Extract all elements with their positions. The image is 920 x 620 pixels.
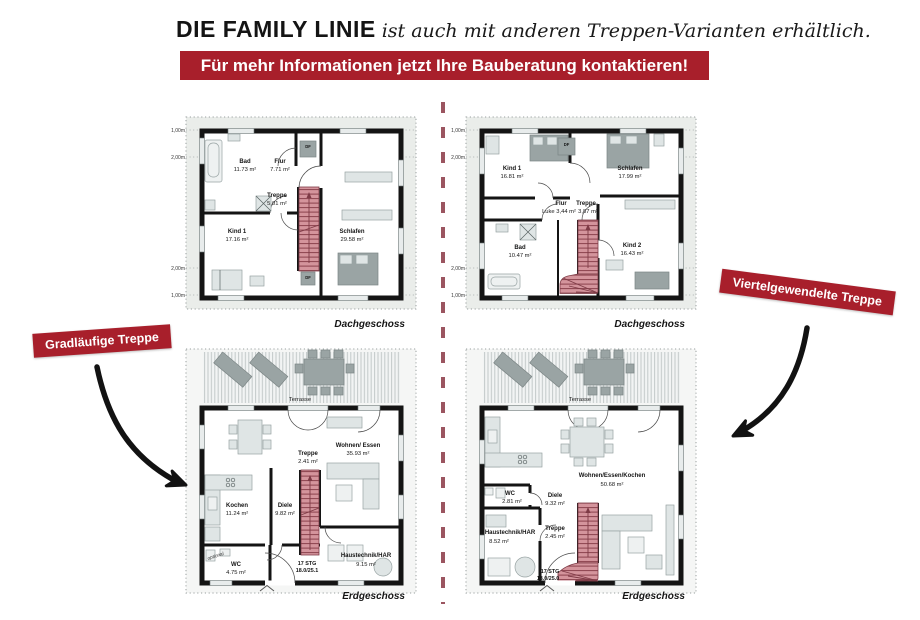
svg-text:10.47 m²: 10.47 m²: [509, 253, 532, 259]
svg-text:Bad: Bad: [514, 245, 526, 251]
roof-window-bottom: DF: [301, 272, 315, 285]
svg-text:WC: WC: [505, 491, 516, 497]
svg-text:16.81 m²: 16.81 m²: [501, 174, 524, 180]
callout-straight-stair: Gradläufige Treppe: [32, 324, 171, 358]
svg-text:Treppe: Treppe: [267, 193, 287, 199]
svg-text:DF: DF: [305, 275, 311, 280]
dim-label: 1,00m: [171, 293, 185, 299]
svg-text:Wohnen/Essen/Kochen: Wohnen/Essen/Kochen: [579, 473, 646, 479]
plan-caption: Dachgeschoss: [614, 319, 685, 330]
plan-caption: Erdgeschoss: [622, 591, 685, 602]
svg-text:17.99 m²: 17.99 m²: [619, 174, 642, 180]
flyer-canvas: DIE FAMILY LINIEist auch mit anderen Tre…: [0, 0, 920, 620]
bathtub: [205, 140, 222, 182]
svg-text:50.68 m²: 50.68 m²: [601, 482, 624, 488]
svg-text:WC: WC: [231, 562, 242, 568]
svg-text:11.73 m²: 11.73 m²: [234, 167, 257, 173]
dim-label: 1,00m: [451, 293, 465, 299]
dim-label: 1,00m: [451, 128, 465, 134]
svg-text:Haustechnik/HAR: Haustechnik/HAR: [485, 530, 536, 536]
header: DIE FAMILY LINIEist auch mit anderen Tre…: [176, 16, 736, 43]
svg-text:9.82 m²: 9.82 m²: [275, 511, 295, 517]
staircase-straight: [301, 470, 319, 555]
header-tagline: ist auch mit anderen Treppen-Varianten e…: [382, 20, 871, 42]
plan-dachgeschoss-winder: 1,00m 2,00m 2,00m 1,00m: [450, 108, 710, 338]
stair-dims: 18.0/25.1: [296, 568, 318, 574]
svg-text:Schlafen: Schlafen: [617, 166, 642, 172]
svg-text:Schlafen: Schlafen: [339, 229, 364, 235]
dim-label: 2,00m: [171, 266, 185, 272]
info-banner: Für mehr Informationen jetzt Ihre Bauber…: [180, 51, 709, 80]
svg-text:Kind 1: Kind 1: [503, 166, 522, 172]
brand-title: DIE FAMILY LINIE: [176, 16, 376, 42]
svg-text:Treppe: Treppe: [298, 451, 318, 457]
svg-text:2.41 m²: 2.41 m²: [298, 459, 318, 465]
svg-text:11.24 m²: 11.24 m²: [226, 511, 249, 517]
svg-text:29.58 m²: 29.58 m²: [341, 237, 364, 243]
svg-text:DF: DF: [305, 144, 311, 149]
svg-text:4.75 m²: 4.75 m²: [226, 570, 246, 576]
callout-winder-stair: Viertelgewendelte Treppe: [719, 269, 895, 316]
svg-text:DF: DF: [564, 142, 570, 147]
svg-text:Diele: Diele: [278, 503, 293, 509]
arrow-right: [733, 328, 807, 436]
svg-text:Kochen: Kochen: [226, 503, 248, 509]
svg-text:Flur: Flur: [555, 201, 567, 207]
terrace-label: Terrasse: [289, 397, 311, 403]
svg-text:35.93 m²: 35.93 m²: [347, 451, 370, 457]
svg-text:8.52 m²: 8.52 m²: [489, 539, 509, 545]
plan-erdgeschoss-straight: Terrasse: [170, 345, 430, 605]
svg-text:Bad: Bad: [239, 159, 251, 165]
plan-dachgeschoss-straight: 1,00m 2,00m 2,00m 1,00m: [170, 108, 430, 338]
svg-text:Haustechnik/HAR: Haustechnik/HAR: [341, 553, 392, 559]
svg-text:9.15 m²: 9.15 m²: [356, 562, 376, 568]
stair-steps: 17 STG: [298, 561, 317, 567]
svg-text:16.43 m²: 16.43 m²: [621, 251, 644, 257]
svg-text:Luke 3,44 m²: Luke 3,44 m²: [542, 209, 576, 215]
dim-label: 2,00m: [451, 155, 465, 161]
plan-caption: Erdgeschoss: [342, 591, 405, 602]
stair-steps: 17 STG: [541, 569, 560, 575]
svg-text:Kind 2: Kind 2: [623, 243, 642, 249]
dim-label: 2,00m: [451, 266, 465, 272]
roof-window-top: DF: [300, 141, 316, 157]
stair-dims: 18.0/25.0: [537, 576, 559, 582]
svg-text:Flur: Flur: [274, 159, 286, 165]
dim-label: 2,00m: [171, 155, 185, 161]
svg-text:Wohnen/ Essen: Wohnen/ Essen: [336, 443, 381, 449]
svg-text:17.16 m²: 17.16 m²: [226, 237, 249, 243]
dim-label: 1,00m: [171, 128, 185, 134]
terrace-label: Terrasse: [569, 397, 591, 403]
svg-text:2.45 m²: 2.45 m²: [545, 534, 565, 540]
svg-text:9.32 m²: 9.32 m²: [545, 501, 565, 507]
staircase-straight: [299, 187, 319, 271]
svg-text:Treppe: Treppe: [545, 526, 565, 532]
svg-text:2.81 m²: 2.81 m²: [502, 499, 522, 505]
plan-erdgeschoss-winder: Terrasse: [450, 345, 710, 605]
roof-window: DF: [558, 138, 575, 155]
terrace: Terrasse: [203, 350, 400, 403]
svg-text:7.71 m²: 7.71 m²: [270, 167, 290, 173]
dashed-divider: [441, 102, 445, 604]
terrace: Terrasse: [483, 350, 680, 403]
svg-text:Treppe: Treppe: [576, 201, 596, 207]
svg-text:5.01 m²: 5.01 m²: [267, 201, 287, 207]
svg-text:Diele: Diele: [548, 493, 563, 499]
svg-text:Kind 1: Kind 1: [228, 229, 247, 235]
plan-caption: Dachgeschoss: [334, 319, 405, 330]
svg-text:3,87 m²: 3,87 m²: [578, 209, 598, 215]
